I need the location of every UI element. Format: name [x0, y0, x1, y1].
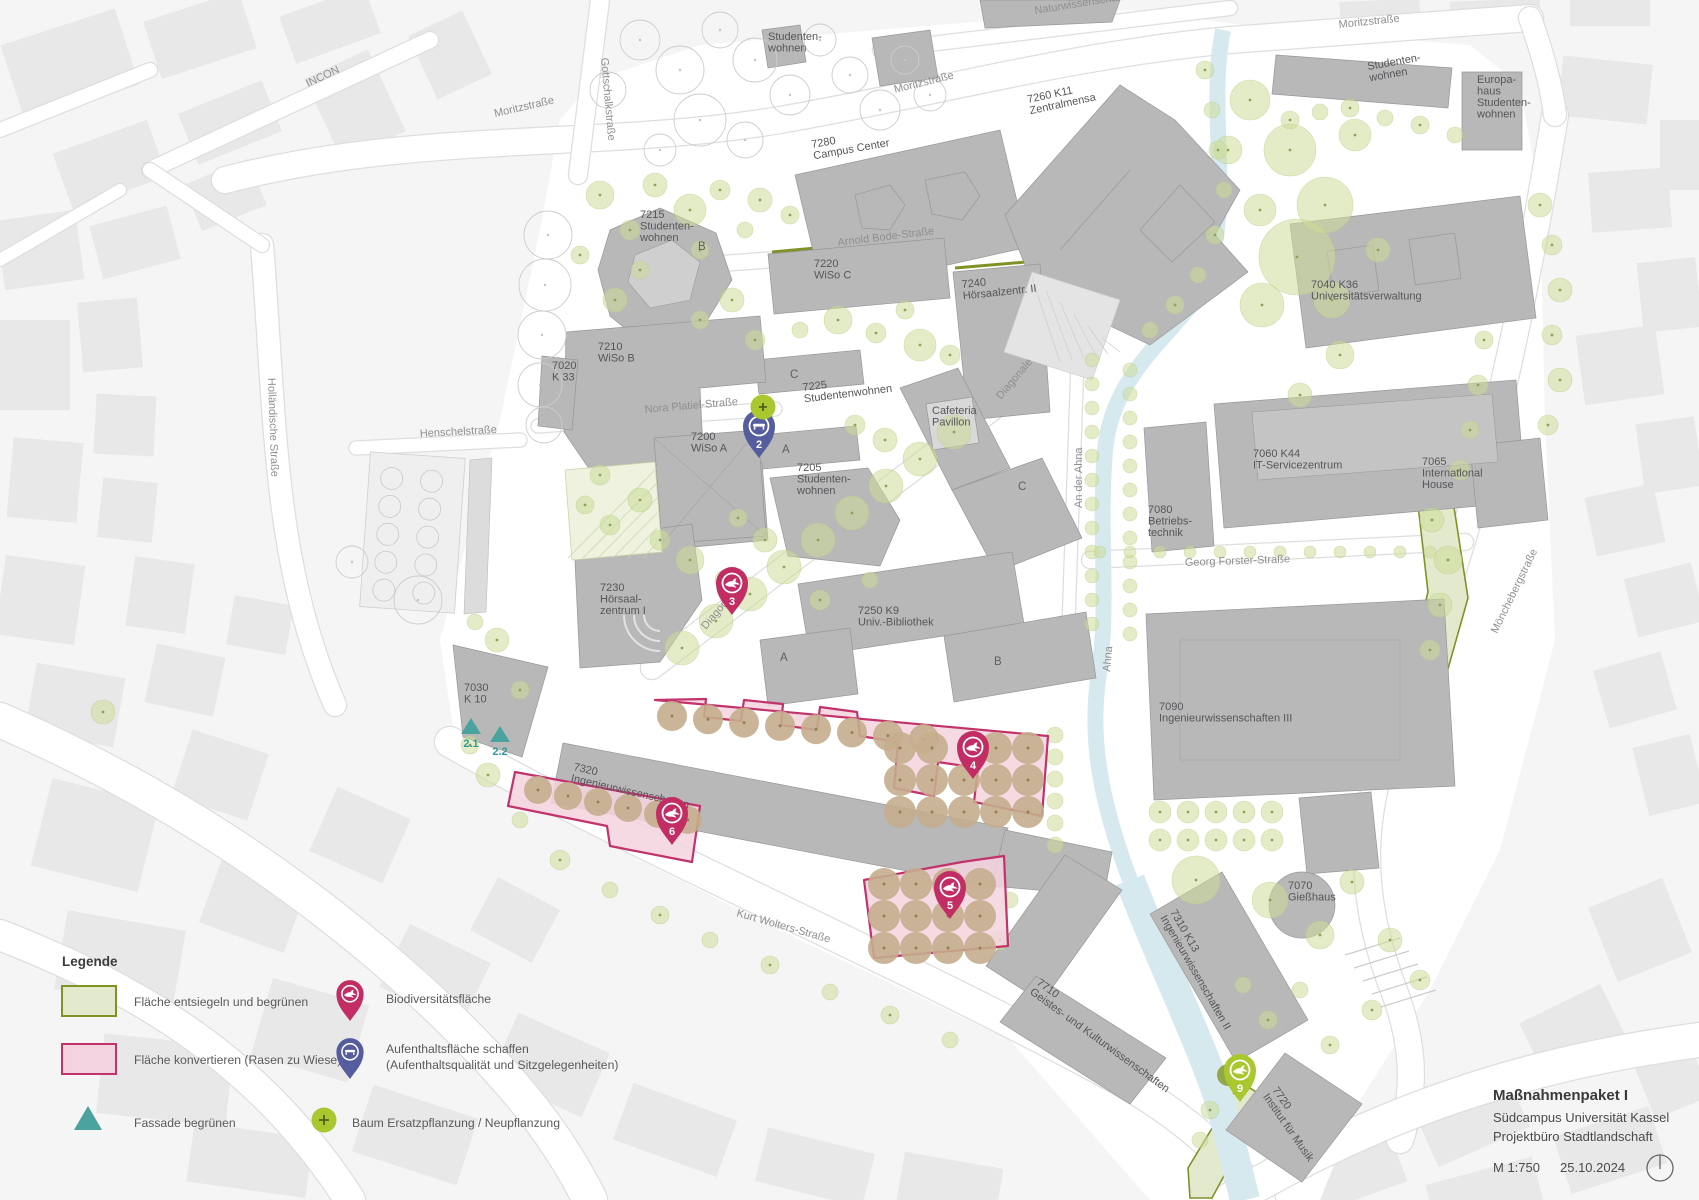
- tree-center: [639, 39, 641, 41]
- building-label-8: 7020K 33: [552, 360, 576, 384]
- tree-center: [102, 711, 105, 714]
- tree-center: [351, 561, 353, 563]
- city-block: [93, 393, 156, 456]
- tree-center: [1469, 429, 1472, 432]
- tree-center: [1551, 334, 1554, 337]
- tree-center: [1371, 1009, 1374, 1012]
- tree-center: [995, 747, 998, 750]
- city-block: [125, 556, 194, 634]
- legend-label-facade: Fassade begrünen: [134, 1116, 236, 1130]
- tree: [1377, 110, 1393, 126]
- tree: [822, 984, 838, 1000]
- tree-center: [699, 119, 701, 121]
- tree: [1085, 377, 1099, 391]
- tree: [1123, 411, 1137, 425]
- tree-center: [1271, 839, 1274, 842]
- tree-center: [719, 189, 722, 192]
- tree-center: [1269, 899, 1272, 902]
- tree-center: [689, 209, 692, 212]
- tree: [1047, 727, 1063, 743]
- tree-center: [1349, 107, 1352, 110]
- plan-scale: M 1:750: [1493, 1160, 1540, 1175]
- tree: [1123, 363, 1137, 377]
- tree-center: [764, 539, 767, 542]
- legend-label-biodiversity: Biodiversitätsfläche: [386, 992, 491, 1006]
- tree-center: [1299, 394, 1302, 397]
- tree: [1216, 182, 1232, 198]
- tree-center: [1174, 304, 1177, 307]
- tree-center: [1559, 289, 1562, 292]
- tree: [1085, 449, 1099, 463]
- bench-icon: [753, 424, 765, 427]
- tree-center: [547, 234, 549, 236]
- tree: [1154, 546, 1166, 558]
- tree-center: [979, 883, 982, 886]
- tree-center: [1559, 379, 1562, 382]
- tree-center: [819, 599, 822, 602]
- tree-center: [883, 947, 886, 950]
- tree-center: [559, 859, 562, 862]
- tree: [1123, 627, 1137, 641]
- tree: [1123, 531, 1137, 545]
- tree-center: [899, 779, 902, 782]
- tree-center: [915, 915, 918, 918]
- city-block: [1637, 257, 1699, 333]
- tree-center: [851, 512, 854, 515]
- tree: [862, 572, 878, 588]
- tree-center: [904, 309, 907, 312]
- city-block: [0, 555, 85, 645]
- city-block: [97, 477, 158, 542]
- tree-center: [1439, 604, 1442, 607]
- tree: [1085, 473, 1099, 487]
- parking-lot: [360, 452, 466, 613]
- tree: [1192, 1132, 1208, 1148]
- pin-number: 3: [729, 596, 735, 608]
- tree-center: [584, 504, 587, 507]
- tree: [1085, 593, 1099, 607]
- tree-center: [1329, 1044, 1332, 1047]
- tree-center: [749, 593, 752, 596]
- tree: [1085, 425, 1099, 439]
- tree-center: [883, 883, 886, 886]
- tree-center: [789, 94, 791, 96]
- street: [356, 440, 520, 448]
- tree-center: [779, 724, 782, 727]
- city-block: [0, 320, 70, 410]
- tree-center: [1195, 879, 1198, 882]
- bench-leg: [763, 427, 765, 430]
- facade-marker-label: 2.2: [492, 746, 507, 758]
- tree-center: [947, 947, 950, 950]
- tree: [1304, 546, 1316, 558]
- tree-center: [1215, 811, 1218, 814]
- legend-heading: Legende: [62, 954, 118, 969]
- tree-center: [599, 194, 602, 197]
- tree-center: [1351, 881, 1354, 884]
- tree-center: [1539, 204, 1542, 207]
- tree-center: [1159, 839, 1162, 842]
- tree: [1085, 617, 1099, 631]
- tree: [1085, 521, 1099, 535]
- tree-center: [1324, 204, 1327, 207]
- tree-center: [744, 139, 746, 141]
- tree-center: [719, 29, 721, 31]
- bench-icon: [345, 1050, 355, 1052]
- building-7250-a: [760, 628, 858, 706]
- tree-center: [979, 947, 982, 950]
- tree-center: [1419, 979, 1422, 982]
- legend-label-seating-1: Aufenthaltsfläche schaffen: [386, 1042, 529, 1056]
- tree-center: [629, 229, 632, 232]
- tree-center: [1187, 811, 1190, 814]
- tree: [1204, 102, 1220, 118]
- tree-center: [609, 524, 612, 527]
- tree-center: [1027, 779, 1030, 782]
- tree-center: [963, 779, 966, 782]
- tree-plus-marker-0: [751, 395, 776, 420]
- tree-center: [1419, 124, 1422, 127]
- plan-date: 25.10.2024: [1560, 1160, 1625, 1175]
- city-block: [1570, 0, 1650, 26]
- tree: [1123, 483, 1137, 497]
- tree-center: [659, 149, 661, 151]
- bench-leg: [353, 1052, 354, 1055]
- building-label-23: B: [994, 656, 1002, 668]
- tree-center: [953, 431, 956, 434]
- tree-center: [1204, 69, 1207, 72]
- building-7090-tower: [1299, 792, 1379, 874]
- tree-center: [1289, 149, 1292, 152]
- tree-center: [579, 254, 582, 257]
- tree: [1123, 459, 1137, 473]
- city-block: [77, 298, 143, 373]
- tree-center: [754, 339, 757, 342]
- tree-center: [1243, 811, 1246, 814]
- tree: [1085, 353, 1099, 367]
- tree-center: [707, 718, 710, 721]
- city-block: [1576, 325, 1665, 405]
- tree-center: [1217, 149, 1220, 152]
- tree-center: [875, 332, 878, 335]
- tree-center: [627, 807, 630, 810]
- tree-center: [1289, 119, 1292, 122]
- tree-center: [1354, 134, 1357, 137]
- pin-number: 5: [947, 900, 953, 912]
- tree: [1424, 546, 1436, 558]
- tree-center: [543, 424, 545, 426]
- tree-center: [597, 801, 600, 804]
- tree-center: [1447, 559, 1450, 562]
- tree-center: [769, 964, 772, 967]
- tree: [1334, 546, 1346, 558]
- tree-center: [1429, 649, 1432, 652]
- tree-center: [487, 774, 490, 777]
- tree-center: [1483, 339, 1486, 342]
- pin-number: 9: [1237, 1083, 1243, 1095]
- tree-center: [654, 184, 657, 187]
- tree-center: [1209, 1109, 1212, 1112]
- tree: [737, 222, 753, 238]
- tree: [602, 882, 618, 898]
- tree-center: [567, 795, 570, 798]
- street-label-14: An der Ahna: [1073, 447, 1085, 508]
- street-label-15: Ahna: [1101, 645, 1115, 673]
- tree-center: [949, 354, 952, 357]
- tree: [1394, 546, 1406, 558]
- tree: [512, 812, 528, 828]
- tree-center: [731, 299, 734, 302]
- tree-center: [599, 474, 602, 477]
- tree: [1123, 507, 1137, 521]
- tree: [1047, 749, 1063, 765]
- tree-center: [883, 915, 886, 918]
- tree-center: [899, 811, 902, 814]
- tree-center: [817, 539, 820, 542]
- legend-label-tree-plus: Baum Ersatzpflanzung / Neupflanzung: [352, 1116, 560, 1130]
- legend-swatch-green-area: [62, 986, 116, 1016]
- tree-center: [1319, 934, 1322, 937]
- building-label-13: A: [782, 444, 790, 456]
- tree: [1047, 815, 1063, 831]
- tree-center: [931, 779, 934, 782]
- tree-center: [699, 319, 702, 322]
- tree-center: [737, 517, 740, 520]
- tree: [702, 932, 718, 948]
- tree: [1447, 127, 1463, 143]
- city-block: [7, 437, 84, 523]
- tree-center: [537, 789, 540, 792]
- city-block: [226, 595, 294, 655]
- city-block: [1588, 167, 1672, 232]
- tree: [1124, 546, 1136, 558]
- legend-label-seating-2: (Aufenthaltsqualität und Sitzgelegenheit…: [386, 1058, 618, 1072]
- tree-center: [417, 599, 419, 601]
- tree-center: [759, 199, 762, 202]
- tree-center: [915, 883, 918, 886]
- tree-center: [979, 915, 982, 918]
- tree-center: [1296, 256, 1299, 259]
- tree-center: [931, 811, 934, 814]
- tree-center: [639, 269, 642, 272]
- tree: [1047, 793, 1063, 809]
- building-label-24: 7030K 10: [464, 682, 488, 706]
- tree-center: [541, 334, 543, 336]
- tree-center: [1271, 811, 1274, 814]
- tree-center: [1377, 249, 1380, 252]
- tree-center: [919, 458, 922, 461]
- tree-center: [889, 1014, 892, 1017]
- tree: [1085, 401, 1099, 415]
- pin-number: 6: [669, 826, 675, 838]
- tree-center: [899, 747, 902, 750]
- tree-center: [1339, 354, 1342, 357]
- tree: [1085, 497, 1099, 511]
- tree-center: [849, 74, 851, 76]
- tree-center: [995, 779, 998, 782]
- tree: [1364, 546, 1376, 558]
- tree-center: [1261, 304, 1264, 307]
- tree-center: [1159, 811, 1162, 814]
- tree-center: [754, 59, 756, 61]
- tree: [1312, 104, 1328, 120]
- tree: [467, 614, 483, 630]
- tree: [1190, 267, 1206, 283]
- tree-center: [689, 559, 692, 562]
- city-block: [1635, 416, 1699, 494]
- tree-center: [851, 731, 854, 734]
- tree-center: [1249, 99, 1252, 102]
- tree-center: [743, 721, 746, 724]
- tree-center: [614, 299, 617, 302]
- tree: [1235, 977, 1251, 993]
- tree-center: [679, 69, 681, 71]
- tree: [1292, 982, 1308, 998]
- tree: [1094, 546, 1106, 558]
- site-plan-svg: INCONMoritzstraßeMoritzstraßeMoritzstraß…: [0, 0, 1699, 1200]
- bench-leg: [754, 427, 756, 430]
- campus-map: INCONMoritzstraßeMoritzstraßeMoritzstraß…: [0, 0, 1699, 1200]
- tree: [1142, 322, 1158, 338]
- tree-center: [1027, 747, 1030, 750]
- tree-center: [837, 319, 840, 322]
- tree-center: [1267, 1019, 1270, 1022]
- tree-center: [1243, 839, 1246, 842]
- tree-center: [885, 485, 888, 488]
- tree-center: [815, 728, 818, 731]
- tree-center: [1259, 209, 1262, 212]
- tree-center: [496, 639, 499, 642]
- tree-center: [681, 647, 684, 650]
- tree-center: [519, 689, 522, 692]
- tree-center: [931, 747, 934, 750]
- tree: [1123, 579, 1137, 593]
- plan-title: Maßnahmenpaket I: [1493, 1087, 1628, 1104]
- tree-center: [904, 59, 906, 61]
- tree-center: [963, 811, 966, 814]
- tree-center: [639, 499, 642, 502]
- tree-center: [1547, 424, 1550, 427]
- tree: [1123, 387, 1137, 401]
- plan-subtitle-1: Südcampus Universität Kassel: [1493, 1110, 1669, 1125]
- building-label-4: B: [698, 241, 706, 253]
- tree-center: [915, 947, 918, 950]
- tree-center: [671, 715, 674, 718]
- tree-center: [1477, 384, 1480, 387]
- tree-center: [783, 566, 786, 569]
- tree-center: [1431, 519, 1434, 522]
- plan-subtitle-2: Projektbüro Stadtlandschaft: [1493, 1129, 1653, 1144]
- tree: [792, 322, 808, 338]
- tree-center: [539, 384, 541, 386]
- tree: [1047, 771, 1063, 787]
- tree-center: [919, 344, 922, 347]
- tree: [1085, 569, 1099, 583]
- legend-swatch-pink-area: [62, 1044, 116, 1074]
- facade-marker-label: 2.1: [463, 738, 478, 750]
- legend-label-pink-area: Fläche konvertieren (Rasen zu Wiese): [134, 1053, 341, 1067]
- tree-center: [1389, 939, 1392, 942]
- tree-center: [1215, 839, 1218, 842]
- tree-center: [929, 94, 931, 96]
- tree-center: [1551, 244, 1554, 247]
- tree: [1047, 837, 1063, 853]
- tree: [942, 1032, 958, 1048]
- tree: [1123, 435, 1137, 449]
- legend-label-green-area: Fläche entsiegeln und begrünen: [134, 995, 308, 1009]
- tree-center: [884, 439, 887, 442]
- building-label-9: C: [790, 369, 798, 381]
- building-7090-ingenieurwissenschaften-3: [1146, 599, 1455, 800]
- tree-center: [1187, 839, 1190, 842]
- city-block: [1557, 55, 1653, 124]
- tree: [1123, 603, 1137, 617]
- tree-center: [544, 284, 546, 286]
- tree-center: [854, 424, 857, 427]
- building-label-22: A: [780, 652, 788, 664]
- bench-leg: [346, 1052, 347, 1055]
- tree-center: [789, 214, 792, 217]
- tree-center: [1027, 811, 1030, 814]
- pin-number: 2: [756, 439, 762, 451]
- tree-center: [995, 811, 998, 814]
- tree-center: [879, 109, 881, 111]
- building-label-15: C: [1018, 481, 1026, 493]
- tree-center: [659, 539, 662, 542]
- tree-center: [1214, 234, 1217, 237]
- pin-number: 4: [970, 760, 977, 772]
- tree-center: [659, 914, 662, 917]
